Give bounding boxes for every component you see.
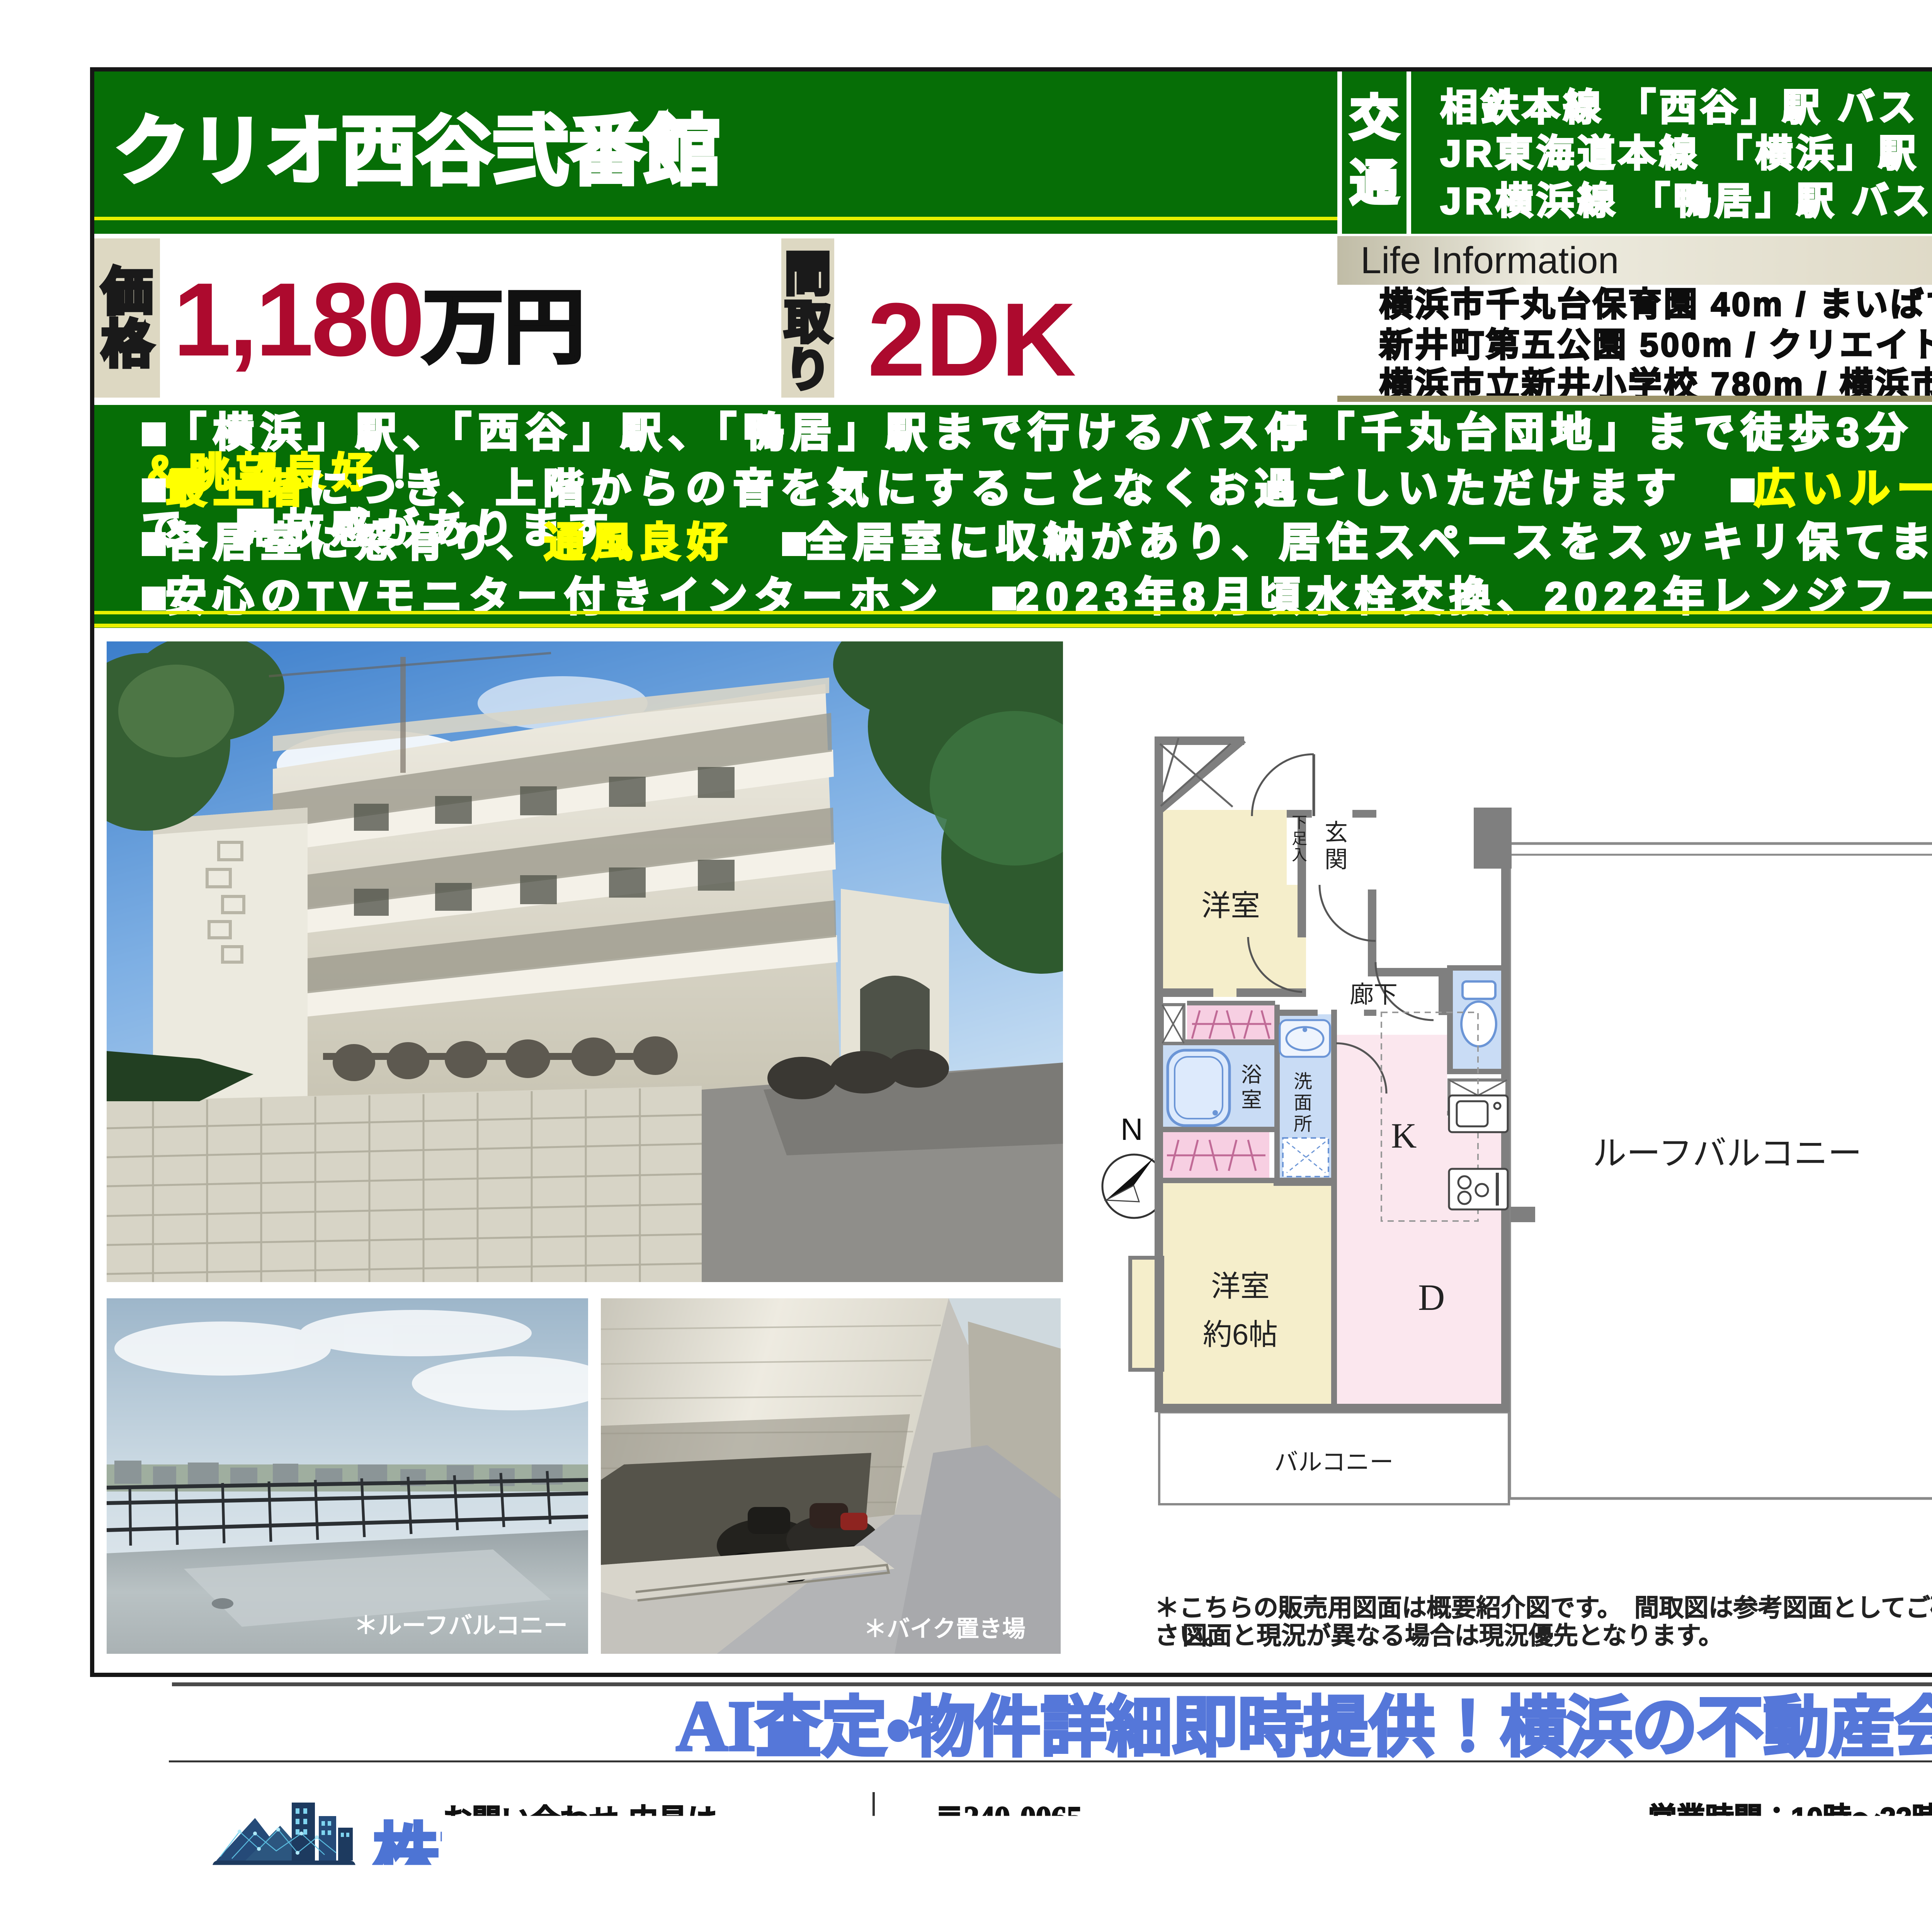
svg-text:所: 所 [1294,1114,1312,1134]
svg-text:室: 室 [1241,1088,1262,1112]
svg-text:約6帖: 約6帖 [1203,1318,1278,1351]
svg-text:入: 入 [1292,847,1307,864]
svg-text:面: 面 [1294,1093,1312,1113]
svg-text:浴: 浴 [1241,1063,1262,1087]
svg-text:バルコニー: バルコニー [1274,1449,1394,1476]
svg-text:廊下: 廊下 [1350,981,1398,1008]
svg-text:＊ルーフバルコニー: ＊ルーフバルコニー [354,1612,568,1639]
svg-text:玄: 玄 [1325,820,1348,845]
svg-text:ルーフバルコニー: ルーフバルコニー [1593,1134,1862,1172]
svg-text:洗: 洗 [1294,1071,1312,1092]
svg-text:下: 下 [1292,814,1307,831]
svg-text:＊バイク置き場: ＊バイク置き場 [864,1616,1026,1642]
svg-text:D: D [1418,1277,1445,1318]
svg-text:足: 足 [1292,830,1307,847]
svg-text:洋室: 洋室 [1201,889,1260,922]
svg-text:K: K [1391,1116,1417,1155]
svg-text:洋室: 洋室 [1211,1270,1270,1303]
svg-text:関: 関 [1325,847,1348,872]
